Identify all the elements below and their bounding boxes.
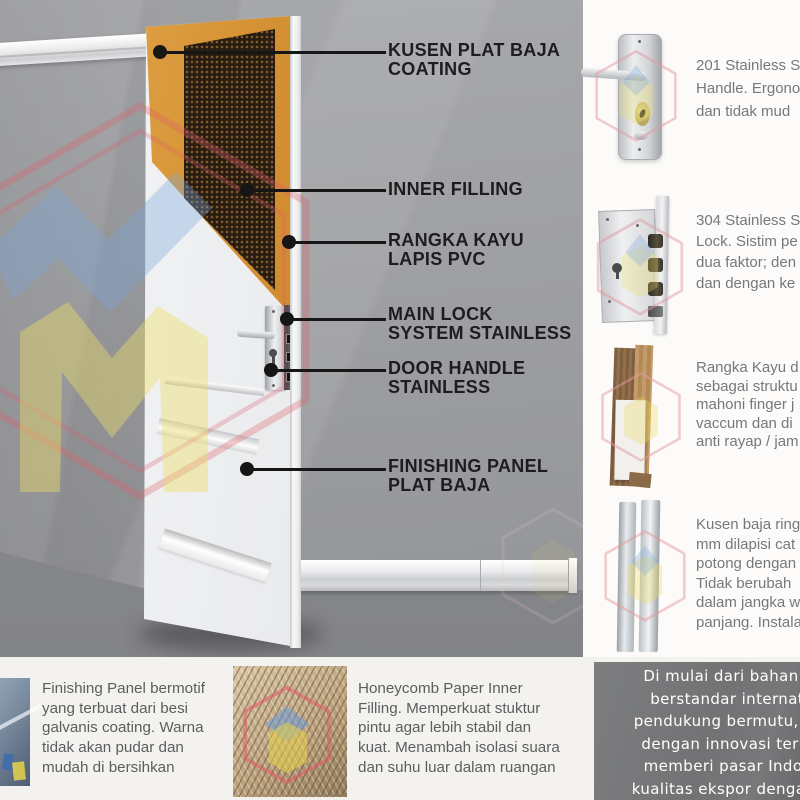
callout-line (160, 51, 386, 54)
finishing-panel-photo (0, 678, 30, 786)
text-line: Di mulai dari bahan utam (594, 665, 800, 688)
callout-label: PLAT BAJA (388, 476, 548, 495)
feature-line: mahoni finger j (696, 396, 800, 415)
feature-line: dan tidak mud (696, 100, 800, 123)
text-line: memberi pasar Indonesia (594, 755, 800, 778)
feature-line: dua faktor; den (696, 252, 800, 273)
callout-label: FINISHING PANEL (388, 457, 548, 476)
callout-dot (240, 462, 254, 476)
screw (638, 148, 641, 151)
feature-line: Rangka Kayu d (696, 359, 800, 378)
steel-profile (639, 500, 661, 652)
keyhole-tail (616, 271, 619, 279)
feature-text-lock: 304 Stainless St Lock. Sistim pe dua fak… (696, 210, 800, 294)
callout-dot (240, 183, 254, 197)
pvc-wrap (614, 400, 645, 481)
lock-bolt (648, 234, 663, 248)
callout-label: MAIN LOCK (388, 305, 572, 324)
feature-text-wood: Rangka Kayu d sebagai struktu mahoni fin… (696, 359, 800, 452)
feature-text-steel: Kusen baja ring mm dilapisi cat potong d… (696, 515, 800, 632)
text-line: pendukung bermutu, metod (594, 710, 800, 733)
photo-streak (0, 704, 42, 732)
baseboard (282, 560, 577, 591)
feature-line: mm dilapisi cat (696, 535, 800, 555)
lock-bolt (648, 258, 663, 272)
feature-line: anti rayap / jam (696, 433, 800, 452)
text-line: berstandar internationa (594, 688, 800, 711)
screw (638, 40, 641, 43)
callout-dot (264, 363, 278, 377)
handle-backplate (618, 34, 662, 160)
bottom-strip: Finishing Panel bermotif yang terbuat da… (0, 657, 800, 800)
feature-line: 304 Stainless St (696, 210, 800, 231)
honeycomb-description: Honeycomb Paper Inner Filling. Memperkua… (358, 679, 560, 778)
text-line: mudah di bersihkan (42, 758, 205, 778)
callout-label: INNER FILLING (388, 180, 523, 199)
lock-photo (592, 188, 687, 338)
callout-line (287, 318, 386, 321)
text-line: Finishing Panel bermotif (42, 679, 205, 699)
door-illustration-panel: KUSEN PLAT BAJA COATING INNER FILLING RA… (0, 0, 583, 657)
callout-line (289, 241, 386, 244)
callout-line (271, 369, 386, 372)
callout-line (247, 468, 386, 471)
text-line: pintu agar lebih stabil dan (358, 718, 560, 738)
callout-label: LAPIS PVC (388, 250, 524, 269)
steel-frame-photo (612, 498, 678, 658)
feature-line: Kusen baja ring (696, 515, 800, 535)
handle-thumbturn (634, 131, 648, 140)
feature-line: Lock. Sistim pe (696, 231, 800, 252)
callout-dot (153, 45, 167, 59)
text-line: yang terbuat dari besi (42, 699, 205, 719)
feature-line: dalam jangka w (696, 593, 800, 613)
callout-label: DOOR HANDLE (388, 359, 525, 378)
brand-statement-panel: Di mulai dari bahan utam berstandar inte… (594, 662, 800, 800)
callout-dot (280, 312, 294, 326)
watermark-hexagon (241, 684, 333, 784)
text-line: Honeycomb Paper Inner (358, 679, 560, 699)
callout-label: KUSEN PLAT BAJA (388, 41, 560, 60)
text-line: dan suhu luar dalam ruangan (358, 758, 560, 778)
feature-text-handle: 201 Stainless St Handle. Ergono dan tida… (696, 54, 800, 123)
baseboard-joint (480, 560, 481, 591)
screw (606, 218, 609, 221)
callout-label: RANGKA KAYU (388, 231, 524, 250)
callout-line (247, 189, 386, 192)
lock-bolt (648, 282, 663, 296)
feature-line: Handle. Ergono (696, 77, 800, 100)
steel-door-infographic: KUSEN PLAT BAJA COATING INNER FILLING RA… (0, 0, 800, 800)
screw (608, 300, 611, 303)
callout-label: COATING (388, 60, 560, 79)
watermark-yellow-mark (12, 761, 26, 780)
feature-line: panjang. Instala (696, 613, 800, 633)
brand-statement-text: Di mulai dari bahan utam berstandar inte… (594, 662, 800, 800)
feature-line: potong dengan (696, 554, 800, 574)
screw (272, 310, 275, 313)
deadbolt (648, 306, 663, 317)
feature-line: Tidak berubah (696, 574, 800, 594)
handle-photo (585, 26, 685, 168)
callout-label: SYSTEM STAINLESS (388, 324, 572, 343)
wood-wedge (628, 472, 651, 488)
feature-column: 201 Stainless St Handle. Ergono dan tida… (583, 0, 800, 657)
screw (272, 384, 275, 387)
text-line: galvanis coating. Warna (42, 718, 205, 738)
door-front-edge (290, 16, 301, 648)
steel-profile (617, 502, 637, 652)
screw (636, 224, 639, 227)
feature-line: vaccum dan di (696, 415, 800, 434)
feature-line: sebagai struktu (696, 378, 800, 397)
honeycomb-photo (233, 666, 347, 797)
text-line: dengan innovasi terkini; k (594, 733, 800, 756)
baseboard-endcap (568, 558, 577, 593)
callout-dot (282, 235, 296, 249)
text-line: kualitas ekspor dengan harg (594, 778, 800, 800)
finishing-panel-description: Finishing Panel bermotif yang terbuat da… (42, 679, 205, 778)
text-line: tidak akan pudar dan (42, 738, 205, 758)
feature-line: dan dengan ke (696, 273, 800, 294)
callout-label: STAINLESS (388, 378, 525, 397)
text-line: kuat. Menambah isolasi suara (358, 738, 560, 758)
text-line: Filling. Memperkuat stuktur (358, 699, 560, 719)
feature-line: 201 Stainless St (696, 54, 800, 77)
wood-frame-photo (605, 345, 675, 490)
